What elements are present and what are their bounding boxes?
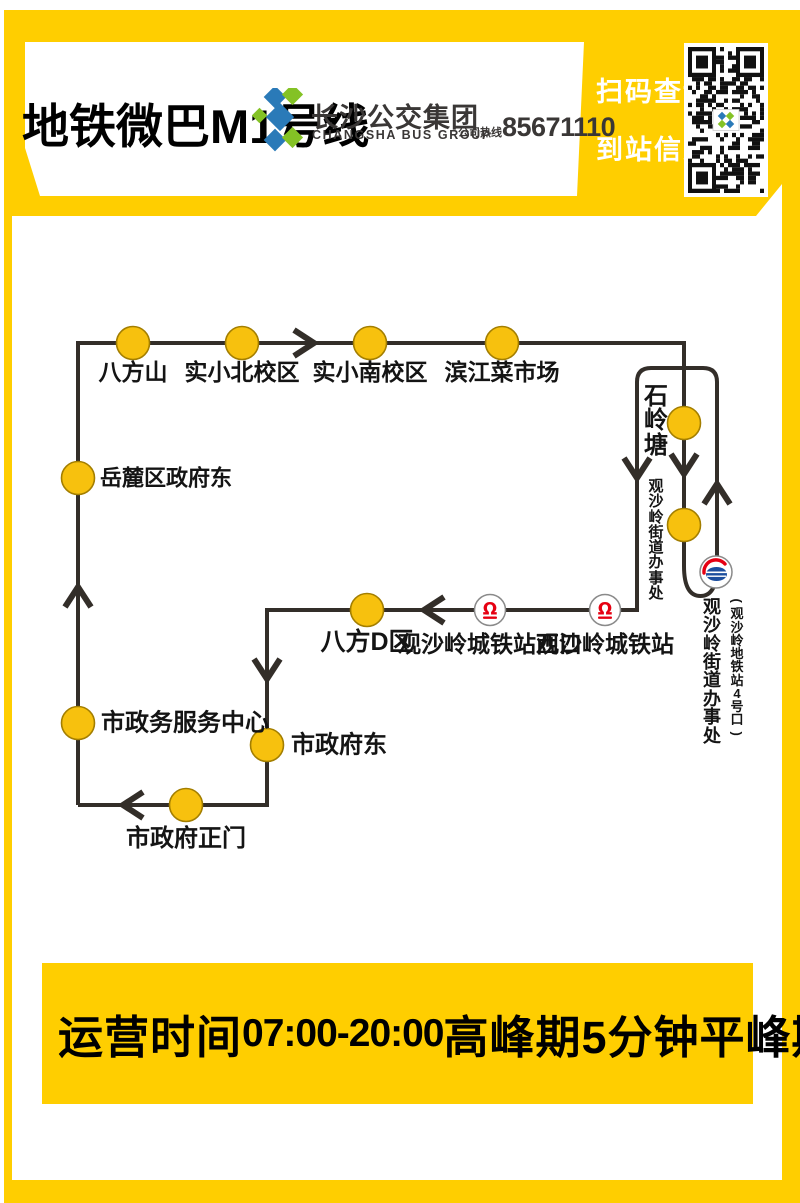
service-hours-value: 07:00-20:00 (242, 1012, 443, 1056)
service-info-band: 运营时间 07:00-20:00 高峰期5分钟 平峰期15分钟 (42, 963, 753, 1104)
bus-stop-marker (117, 327, 150, 360)
vertical-label-char: 沙 (730, 621, 743, 634)
vertical-label-char: 处 (703, 727, 721, 745)
vertical-label-char: 口 (730, 713, 743, 726)
vertical-label-char: 地 (730, 647, 743, 660)
vertical-label-char: 处 (648, 586, 663, 601)
terminus-label-main: 观沙岭街道办事处 (703, 598, 721, 745)
vertical-label-char: 铁 (730, 660, 743, 673)
station-label: 滨江菜市场 (445, 360, 560, 384)
station-label: 八方山 (99, 360, 168, 384)
offpeak-headway: 平峰期15分钟 (700, 1001, 800, 1066)
bus-stop-marker (354, 327, 387, 360)
vertical-label-char: 沙 (648, 494, 663, 509)
bus-stop-marker (170, 789, 203, 822)
vertical-label-char: 观 (730, 607, 743, 620)
vertical-label-char: 岭 (644, 409, 668, 433)
bus-stop-marker (668, 407, 701, 440)
station-label: 观沙岭街道办事处 (648, 479, 663, 601)
vertical-label-char: 岭 (648, 510, 663, 525)
vertical-label-char: 岭 (730, 634, 743, 647)
vertical-label-char: 石 (644, 385, 668, 409)
station-label: 市政务服务中心 (101, 710, 269, 735)
vertical-label-char: ) (730, 731, 743, 735)
vertical-label-char: 街 (648, 525, 663, 540)
vertical-label-char: 道 (703, 671, 721, 689)
vertical-label-char: 事 (648, 571, 663, 586)
vertical-label-char: 观 (703, 598, 721, 616)
station-label: 市政府正门 (126, 826, 246, 851)
bus-stop-marker (351, 594, 384, 627)
vertical-label-char: 沙 (703, 616, 721, 634)
vertical-label-char: 塘 (644, 434, 668, 458)
vertical-label-char: 办 (703, 690, 721, 708)
vertical-label-char: ( (730, 598, 743, 602)
station-label: 实小南校区 (313, 360, 428, 384)
railway-station-icon: Ω (475, 595, 506, 626)
vertical-label-char: 4 (733, 687, 740, 700)
terminus-label-sub: (观沙岭地铁站4号口) (730, 594, 743, 740)
service-hours-label: 运营时间 (58, 1001, 242, 1066)
bus-stop-marker (62, 462, 95, 495)
vertical-label-char: 事 (703, 708, 721, 726)
vertical-label-char: 岭 (703, 635, 721, 653)
station-label: 八方D区 (320, 629, 413, 655)
station-label: 实小北校区 (185, 360, 300, 384)
vertical-label-char: 街 (703, 653, 721, 671)
station-label: 石岭塘 (644, 385, 668, 458)
vertical-label-char: 号 (730, 700, 743, 713)
station-label: 观沙岭城铁站西口 (398, 632, 582, 656)
bus-stop-marker (486, 327, 519, 360)
bus-stop-marker (226, 327, 259, 360)
vertical-label-char: 站 (730, 674, 743, 687)
vertical-label-char: 观 (648, 479, 663, 494)
station-label: 岳麓区政府东 (100, 466, 232, 489)
bus-stop-marker (62, 707, 95, 740)
station-label: 市政府东 (291, 732, 387, 757)
railway-station-icon: Ω (590, 595, 621, 626)
vertical-label-char: 办 (648, 555, 663, 570)
bus-stop-marker (668, 509, 701, 542)
metro-logo-icon (700, 556, 732, 588)
peak-headway: 高峰期5分钟 (444, 1001, 700, 1066)
